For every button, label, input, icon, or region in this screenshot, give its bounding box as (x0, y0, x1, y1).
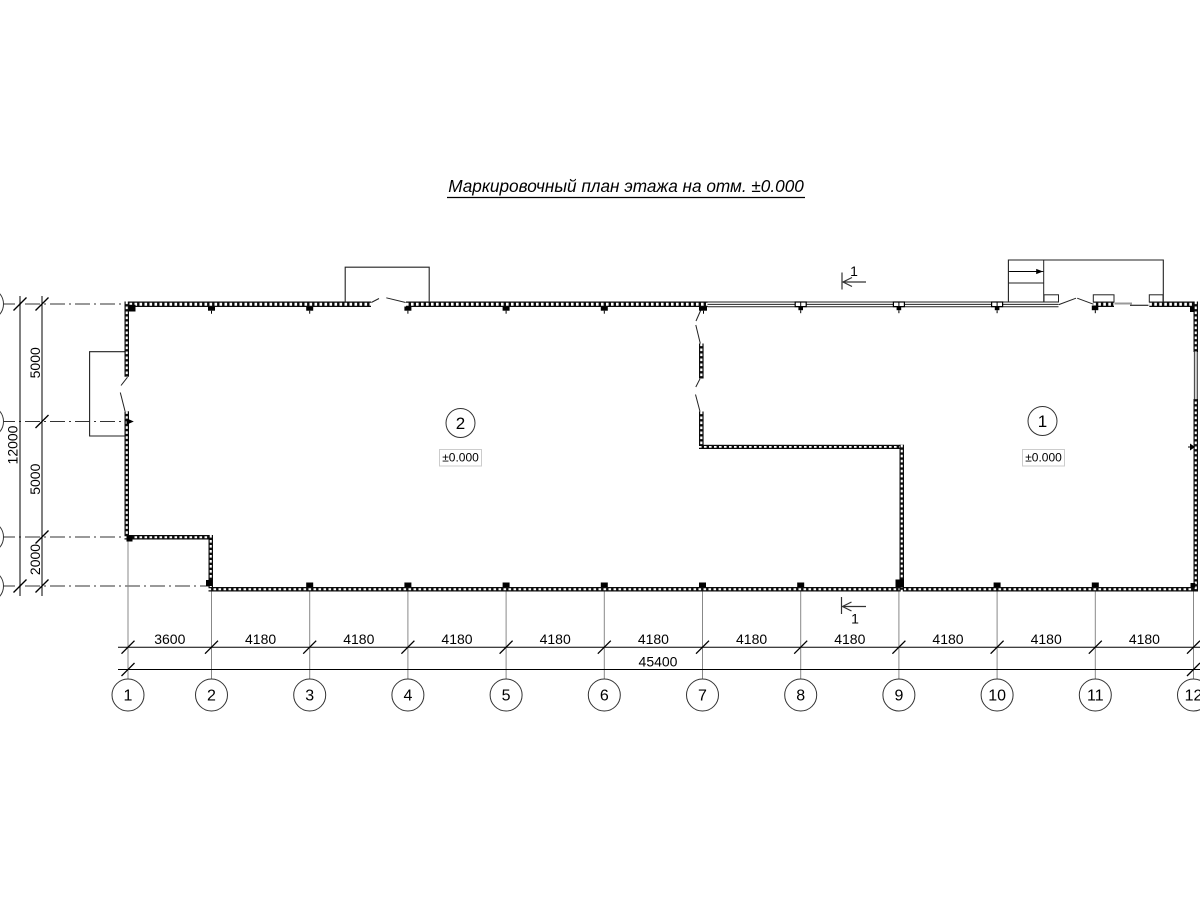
svg-text:2000: 2000 (27, 544, 43, 575)
svg-text:1: 1 (850, 263, 858, 279)
svg-text:6: 6 (600, 688, 609, 705)
svg-text:7: 7 (698, 688, 707, 705)
svg-text:4180: 4180 (638, 631, 669, 647)
svg-text:Маркировочный план этажа на от: Маркировочный план этажа на отм. ±0.000 (448, 176, 804, 196)
svg-text:1: 1 (1038, 412, 1047, 431)
svg-text:4180: 4180 (441, 631, 472, 647)
svg-text:5: 5 (502, 688, 511, 705)
svg-text:3600: 3600 (154, 631, 185, 647)
svg-text:1: 1 (851, 611, 859, 627)
svg-text:12000: 12000 (5, 425, 21, 464)
svg-text:4: 4 (403, 688, 412, 705)
svg-text:4180: 4180 (245, 631, 276, 647)
svg-text:10: 10 (988, 688, 1006, 705)
svg-text:4180: 4180 (540, 631, 571, 647)
svg-text:12: 12 (1185, 688, 1200, 705)
svg-text:±0.000: ±0.000 (442, 451, 479, 465)
svg-text:8: 8 (796, 688, 805, 705)
svg-text:4180: 4180 (1031, 631, 1062, 647)
svg-text:±0.000: ±0.000 (1025, 451, 1062, 465)
svg-text:11: 11 (1087, 688, 1104, 705)
svg-text:4180: 4180 (1129, 631, 1160, 647)
svg-text:9: 9 (894, 688, 903, 705)
svg-text:5000: 5000 (27, 347, 43, 378)
svg-text:1: 1 (124, 688, 133, 705)
svg-text:4180: 4180 (736, 631, 767, 647)
svg-text:4180: 4180 (932, 631, 963, 647)
svg-text:4180: 4180 (343, 631, 374, 647)
svg-text:2: 2 (456, 414, 465, 433)
svg-text:3: 3 (305, 688, 314, 705)
svg-text:2: 2 (207, 688, 216, 705)
svg-text:5000: 5000 (27, 463, 43, 494)
svg-text:4180: 4180 (834, 631, 865, 647)
svg-text:45400: 45400 (639, 654, 678, 670)
